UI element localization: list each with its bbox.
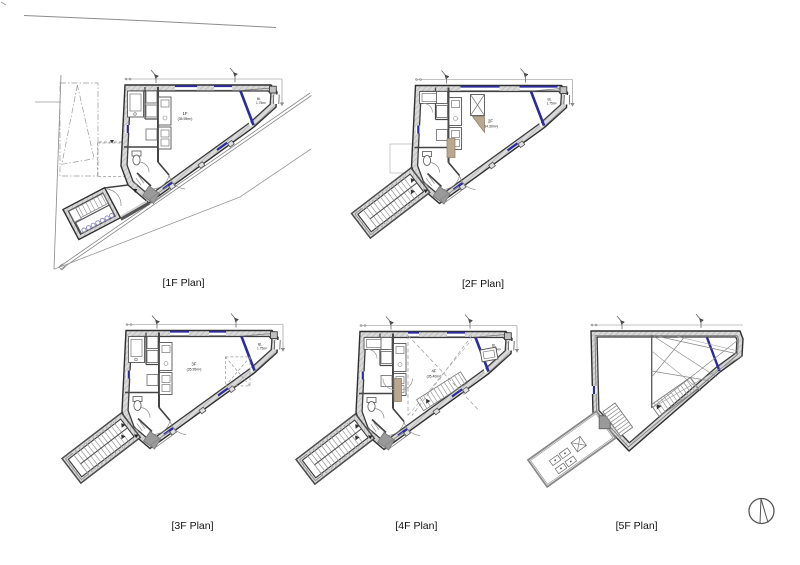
svg-text:[5F Plan]: [5F Plan] <box>616 520 658 532</box>
svg-text:(35.95m²): (35.95m²) <box>178 117 193 121</box>
svg-text:4F: 4F <box>432 369 437 374</box>
svg-text:1.75m²: 1.75m² <box>547 102 557 106</box>
svg-text:(35.95m²): (35.95m²) <box>187 368 202 372</box>
svg-text:[1F Plan]: [1F Plan] <box>162 277 204 289</box>
svg-text:[3F Plan]: [3F Plan] <box>171 520 213 532</box>
svg-text:(34.30m²): (34.30m²) <box>483 125 498 129</box>
svg-text:2F: 2F <box>488 119 493 124</box>
svg-text:(35.40m²): (35.40m²) <box>427 375 442 379</box>
svg-text:[2F Plan]: [2F Plan] <box>462 278 504 290</box>
svg-text:1.75m²: 1.75m² <box>257 347 267 351</box>
svg-text:1F: 1F <box>183 111 188 116</box>
svg-text:[4F Plan]: [4F Plan] <box>395 520 437 532</box>
svg-text:3F: 3F <box>192 362 197 367</box>
svg-text:1.75m²: 1.75m² <box>256 101 266 105</box>
